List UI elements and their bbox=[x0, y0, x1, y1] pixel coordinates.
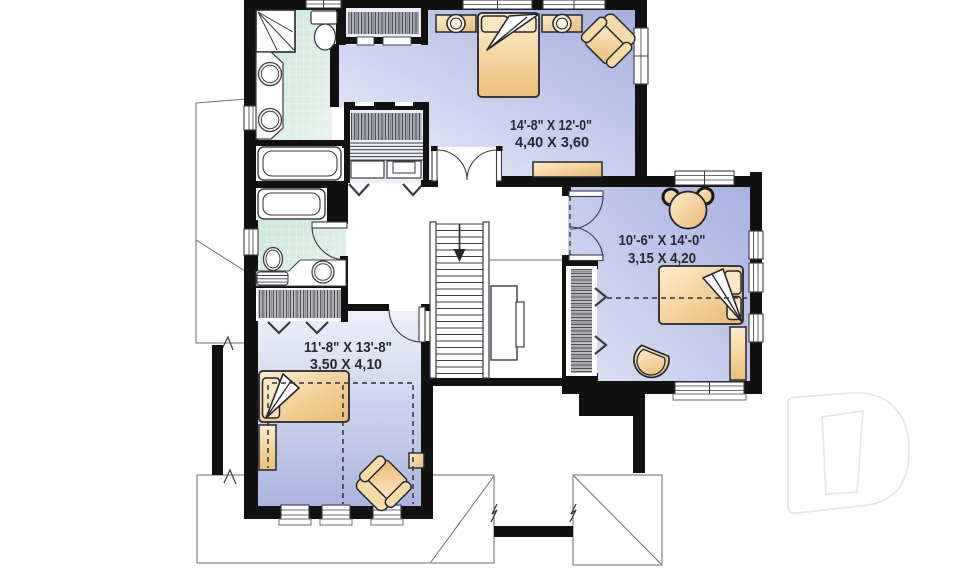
svg-text:3,50 X 4,10: 3,50 X 4,10 bbox=[310, 356, 382, 373]
svg-text:10'-6" X 14'-0": 10'-6" X 14'-0" bbox=[619, 232, 706, 249]
svg-text:14'-8" X 12'-0": 14'-8" X 12'-0" bbox=[510, 117, 592, 134]
svg-text:3,15 X 4,20: 3,15 X 4,20 bbox=[628, 250, 696, 267]
svg-text:4,40 X 3,60: 4,40 X 3,60 bbox=[515, 134, 589, 151]
svg-text:11'-8" X 13'-8": 11'-8" X 13'-8" bbox=[304, 339, 392, 356]
